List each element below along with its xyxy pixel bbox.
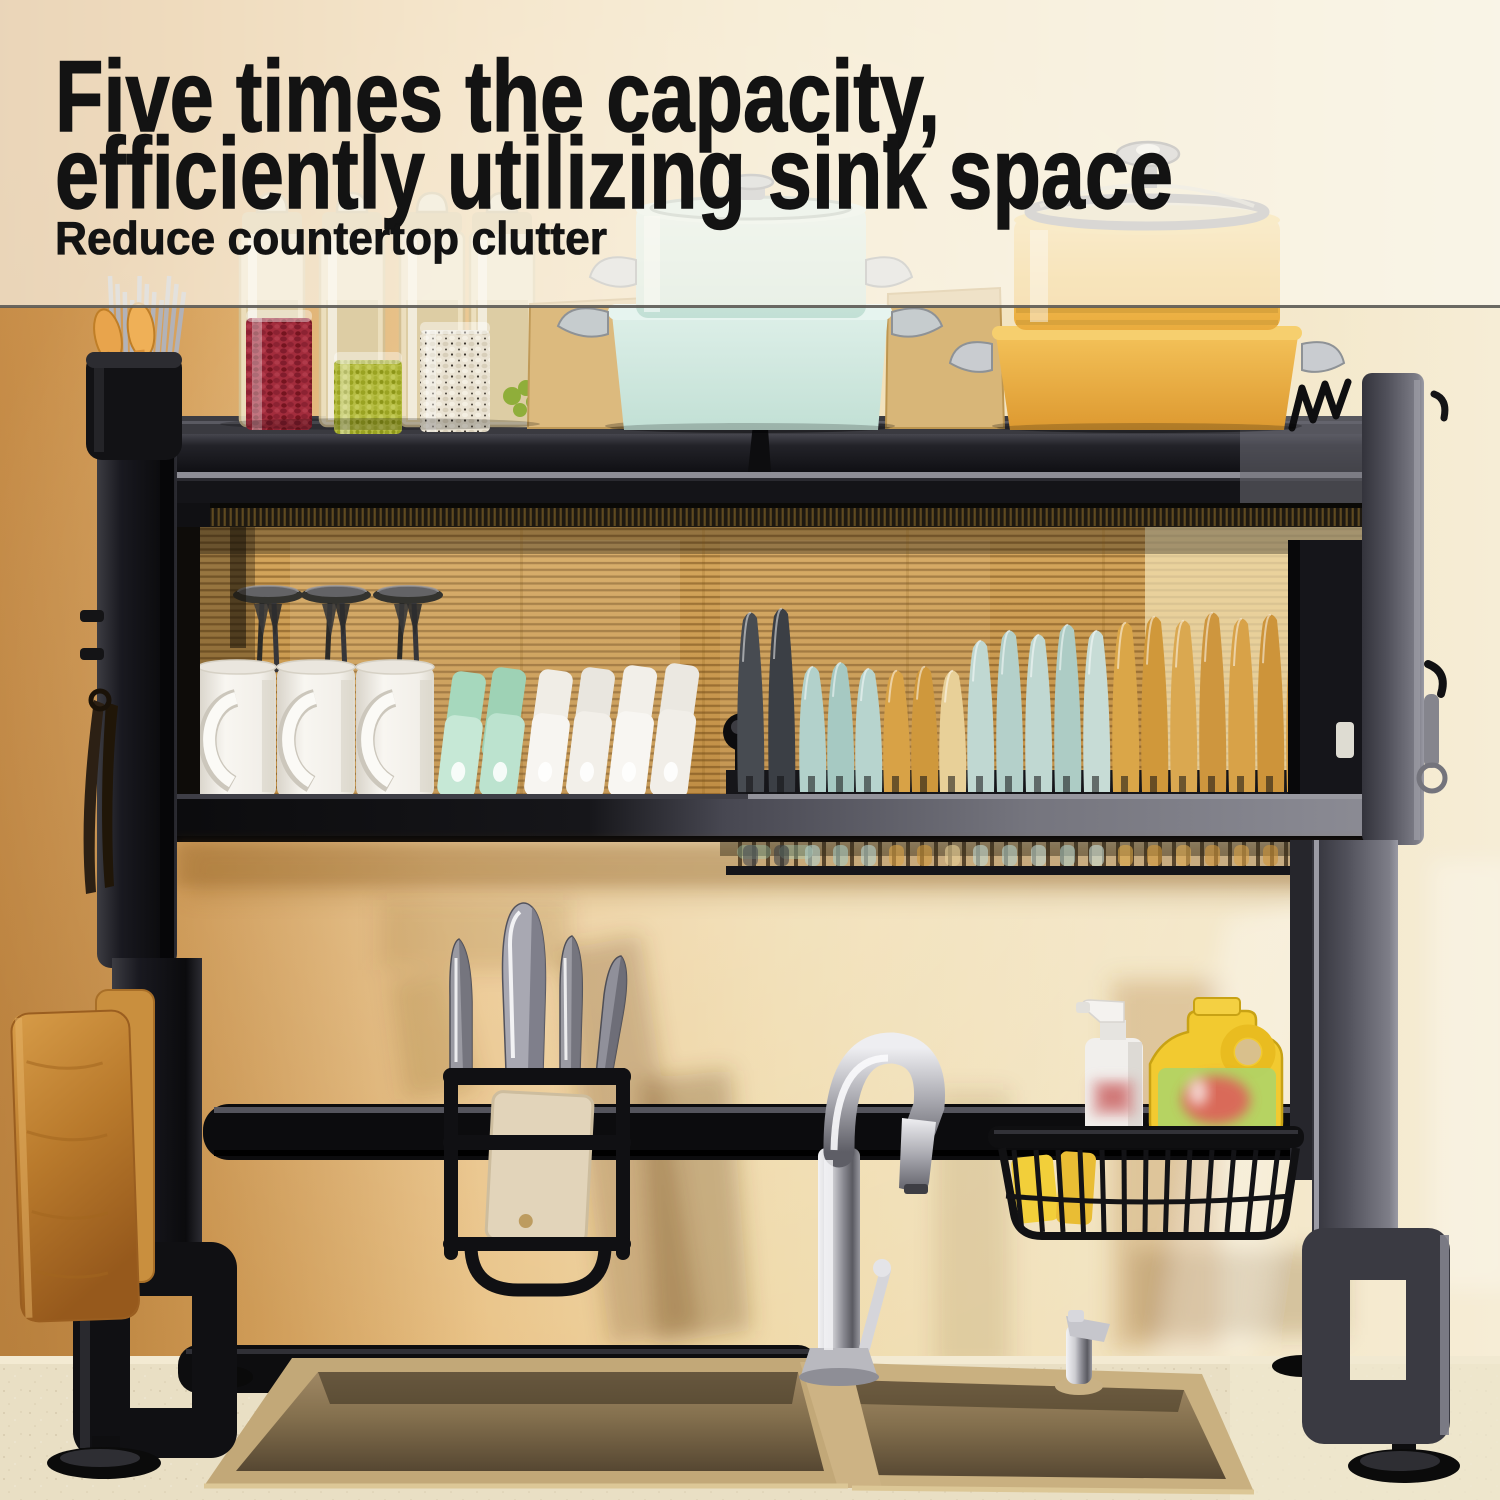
svg-text:Reduce countertop clutter: Reduce countertop clutter	[55, 212, 607, 264]
